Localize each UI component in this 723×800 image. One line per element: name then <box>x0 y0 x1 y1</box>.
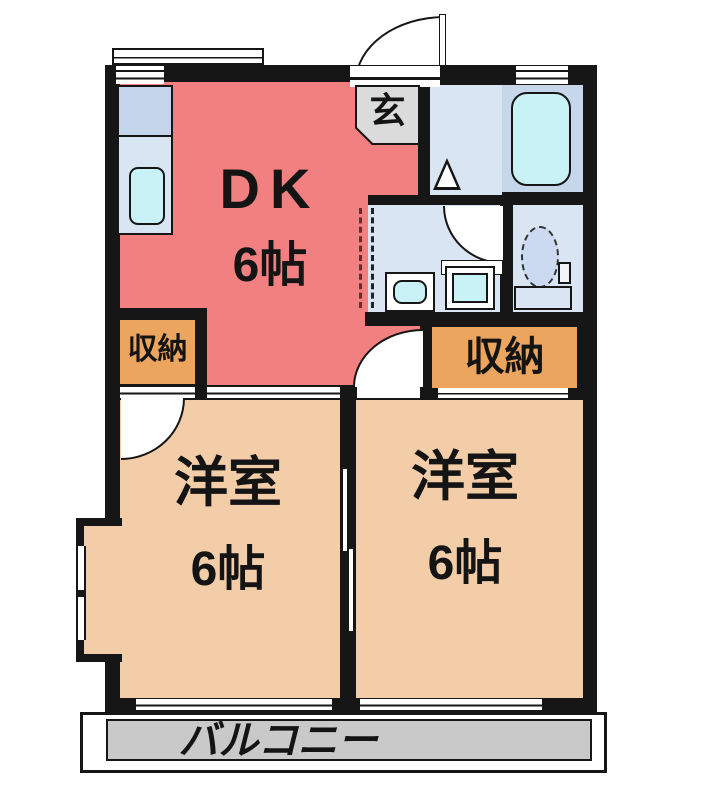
floor-plan: 玄 バルコニー DK 6帖 洋室 6帖 洋室 6帖 収納 収納 <box>0 0 723 800</box>
window-bathroom <box>516 66 568 84</box>
balcony-label: バルコニー <box>128 720 428 762</box>
storage-right-door-strip <box>438 388 568 398</box>
washbasin-bowl <box>393 280 427 304</box>
window-bottom-left <box>136 699 332 710</box>
bedroom-right-name: 洋室 <box>355 436 575 518</box>
bay-window-glass <box>76 546 86 640</box>
bedroom-left-name: 洋室 <box>118 442 338 524</box>
window-bottom-right <box>360 699 542 710</box>
partition-sliding-door-panel-1 <box>342 468 348 552</box>
bedroom-right-size: 6帖 <box>355 518 575 610</box>
dk-partition-sliding-strip <box>207 387 340 398</box>
partition-sliding-door-panel-2 <box>348 548 354 632</box>
bedroom-left-label: 洋室 6帖 <box>118 442 338 616</box>
bedroom-right-label: 洋室 6帖 <box>355 436 575 610</box>
bathroom-door-triangle <box>433 158 461 190</box>
toilet-bowl <box>521 226 559 288</box>
storage-right-label: 収納 <box>432 336 577 378</box>
storage-left-label: 収納 <box>120 334 195 366</box>
kitchen-upper-cabinet <box>117 85 173 137</box>
entrance-threshold <box>350 66 440 87</box>
window-top-left <box>116 66 164 84</box>
entrance-label: 玄 <box>357 92 418 130</box>
washing-machine-pan-inner <box>452 273 488 303</box>
dk-room-label: DK 6帖 <box>160 150 380 304</box>
bathtub <box>511 92 571 186</box>
dk-room-name: DK <box>160 150 380 228</box>
bedroom-right-door-strip <box>357 387 420 398</box>
dk-room-size: 6帖 <box>160 228 380 304</box>
eaves-ledge <box>112 48 264 65</box>
bedroom-left-size: 6帖 <box>118 524 338 616</box>
toilet-side-box <box>558 262 571 284</box>
toilet-tank <box>514 286 572 310</box>
bedroom-left-door-strip <box>120 387 195 398</box>
